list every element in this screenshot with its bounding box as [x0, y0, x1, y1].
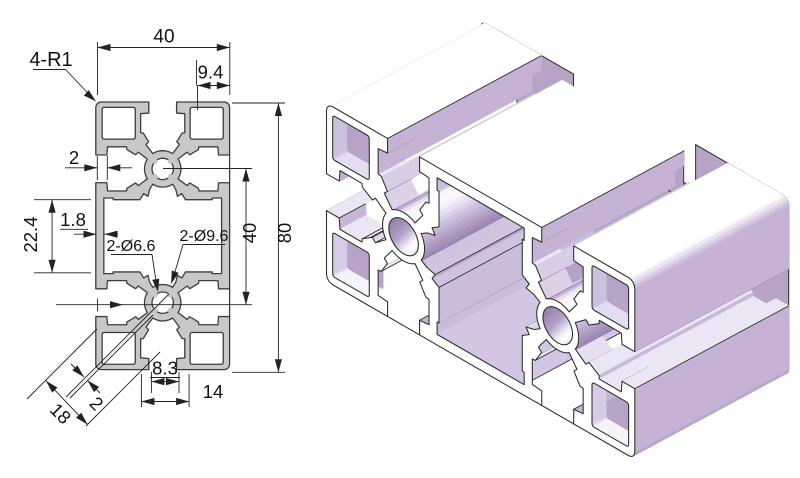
svg-text:22.4: 22.4 [20, 216, 41, 252]
svg-text:40: 40 [153, 27, 174, 48]
svg-text:9.4: 9.4 [198, 62, 224, 83]
svg-text:2: 2 [86, 392, 108, 414]
svg-text:2-Ø6.6: 2-Ø6.6 [107, 238, 156, 255]
svg-text:14: 14 [203, 381, 224, 402]
svg-text:18: 18 [46, 399, 75, 428]
svg-text:8.3: 8.3 [152, 358, 178, 379]
svg-text:2-Ø9.6: 2-Ø9.6 [180, 228, 229, 245]
svg-text:1.8: 1.8 [60, 209, 86, 230]
svg-text:40: 40 [239, 223, 260, 244]
svg-text:80: 80 [274, 223, 295, 244]
svg-text:4-R1: 4-R1 [29, 49, 72, 71]
svg-text:2: 2 [69, 147, 79, 168]
